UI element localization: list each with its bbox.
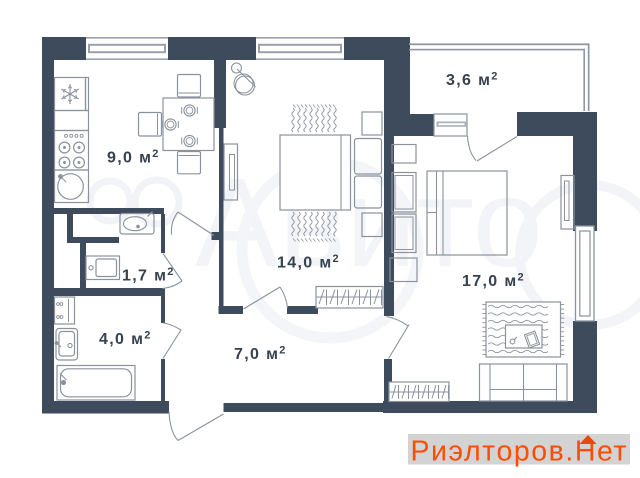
svg-text:3,6 м2: 3,6 м2: [446, 71, 499, 90]
svg-text:Риэлторов.Нет: Риэлторов.Нет: [411, 436, 629, 468]
svg-text:17,0 м2: 17,0 м2: [462, 272, 525, 291]
svg-text:1,7 м2: 1,7 м2: [122, 266, 175, 285]
svg-text:7,0 м2: 7,0 м2: [234, 345, 287, 364]
svg-text:9,0 м2: 9,0 м2: [107, 148, 160, 167]
svg-text:14,0 м2: 14,0 м2: [277, 253, 340, 272]
svg-text:4,0 м2: 4,0 м2: [99, 330, 152, 349]
